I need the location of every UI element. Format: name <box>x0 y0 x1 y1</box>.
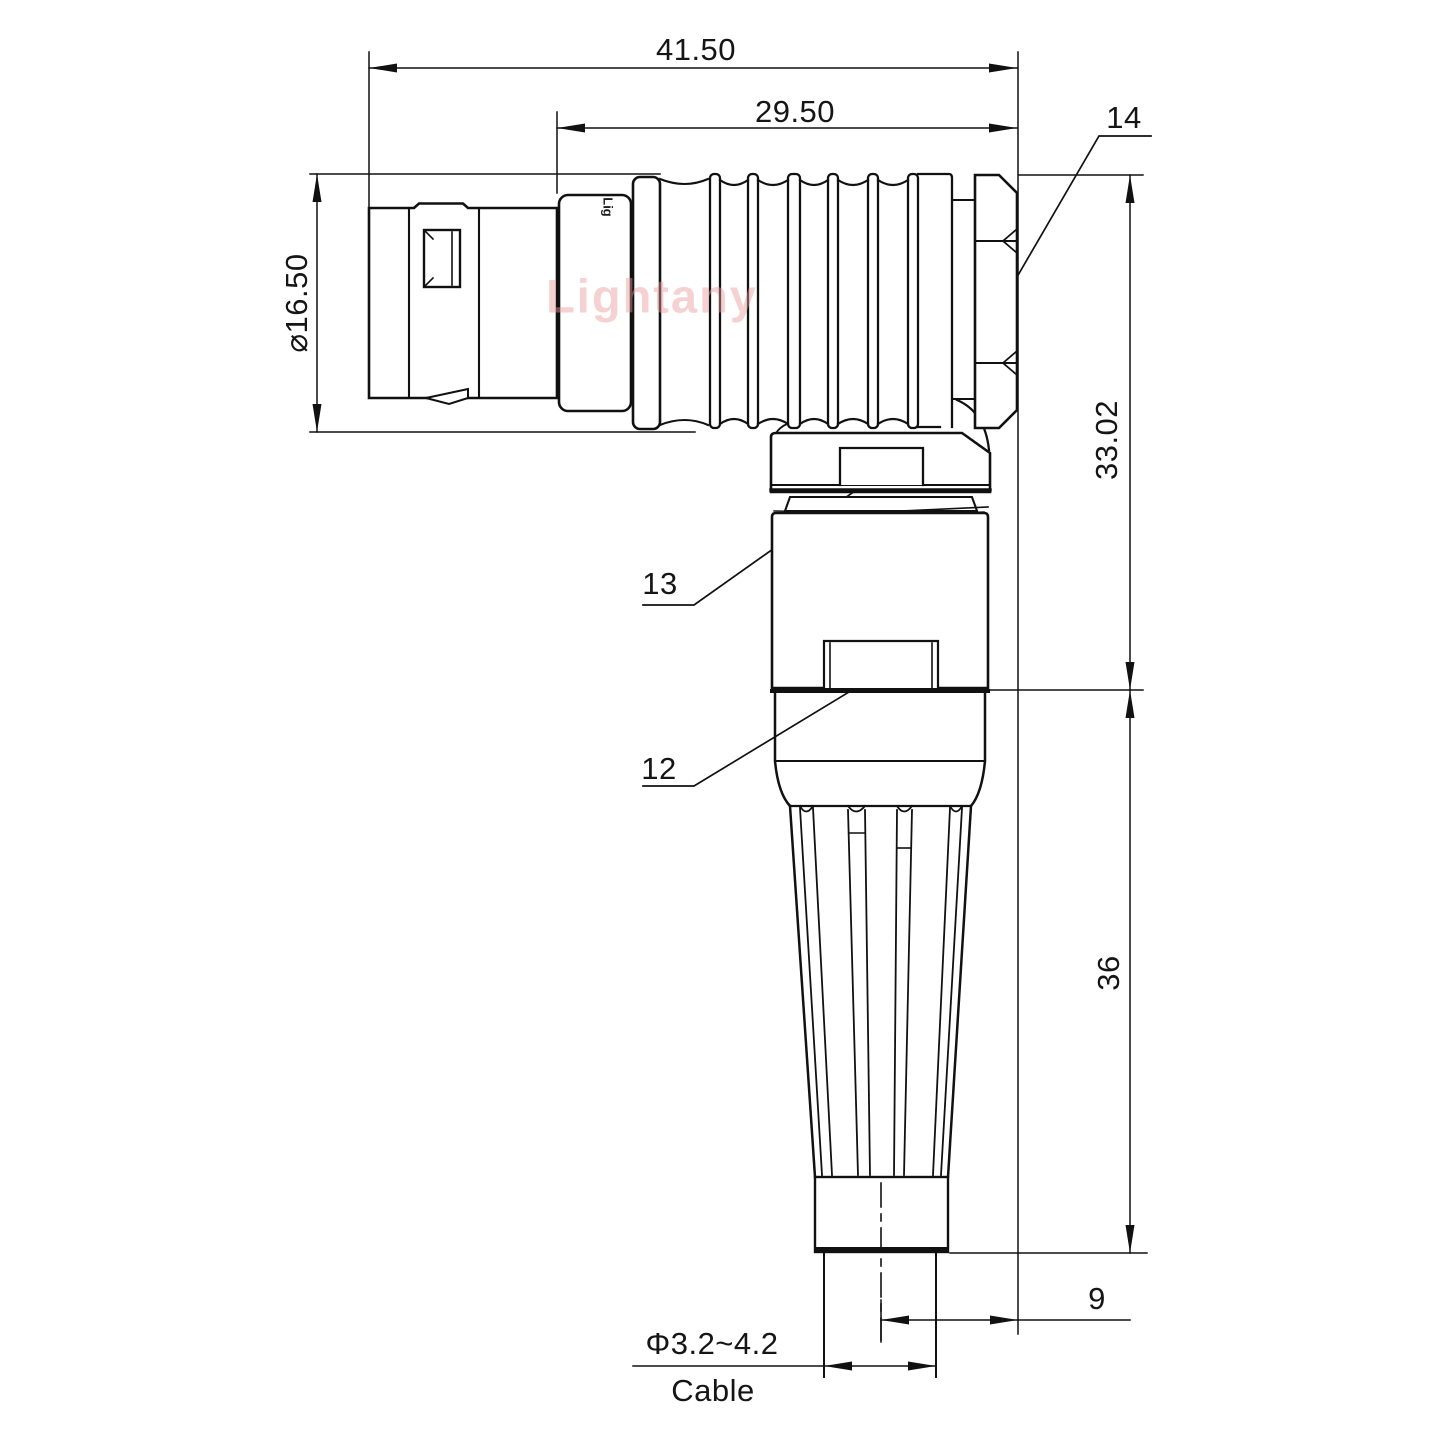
hex-nut <box>975 175 1017 428</box>
plug-shell <box>369 204 557 405</box>
dim-height-to-axis: 33.02 <box>1089 400 1125 480</box>
dim-boot-height: 36 <box>1091 955 1127 990</box>
cable-label: Cable <box>671 1373 755 1409</box>
part-marking: Lig <box>601 197 616 217</box>
callout-12: 12 <box>641 751 676 787</box>
watermark: Lightany <box>546 269 758 324</box>
coupling-nut <box>771 424 990 492</box>
dim-cable-diameter: Φ3.2~4.2 <box>645 1326 778 1362</box>
callout-14: 14 <box>1106 100 1141 136</box>
dim-overall-length: 41.50 <box>656 32 736 68</box>
cable-stub <box>824 1253 936 1377</box>
dim-rear-length: 29.50 <box>755 94 835 130</box>
dim-shell-diameter: ⌀16.50 <box>279 253 315 352</box>
dim-cable-offset: 9 <box>1088 1281 1106 1317</box>
technical-drawing-page: 41.50 29.50 ⌀16.50 33.02 36 9 Φ3.2~4.2 C… <box>0 0 1440 1440</box>
strain-relief-boot <box>775 693 985 1177</box>
callout-13: 13 <box>642 566 677 602</box>
housing-barrel <box>772 513 988 691</box>
connector-drawing <box>0 0 1440 1440</box>
